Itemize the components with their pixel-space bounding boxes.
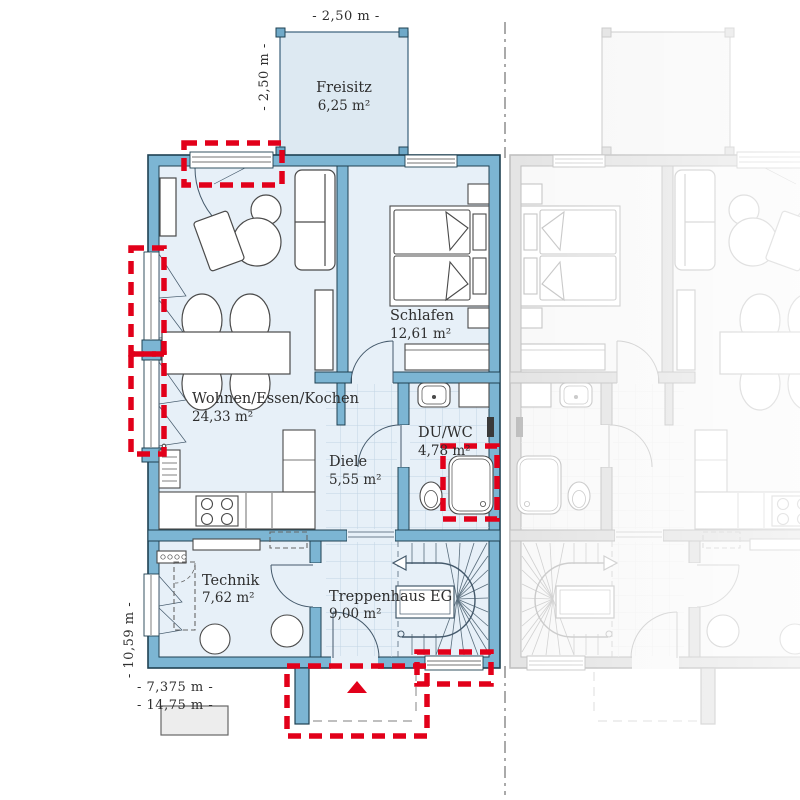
room-label-diele: Diele	[329, 454, 367, 470]
room-area-wohnen: 24,33 m²	[192, 409, 253, 425]
dim-house-depth: - 10,59 m -	[122, 602, 137, 678]
room-label-schlafen: Schlafen	[390, 308, 454, 324]
room-label-wohnen: Wohnen/Essen/Kochen	[192, 391, 359, 407]
floor-plan-svg: Freisitz 6,25 m² Schlafen 12,61 m² Wohne…	[0, 0, 800, 800]
floor-plan-page: Freisitz 6,25 m² Schlafen 12,61 m² Wohne…	[0, 0, 800, 800]
dim-terrace-width: - 2,50 m -	[312, 9, 379, 24]
room-label-freisitz: Freisitz	[316, 80, 372, 96]
room-area-schlafen: 12,61 m²	[390, 326, 451, 342]
room-label-treppenhaus: Treppenhaus EG	[329, 589, 452, 605]
dim-terrace-depth: - 2,50 m -	[257, 43, 272, 110]
dim-total-width: - 14,75 m -	[137, 698, 213, 713]
room-area-duwc: 4,78 m²	[418, 443, 471, 459]
neighbor-fade	[515, 0, 800, 800]
room-area-treppenhaus: 9,00 m²	[329, 606, 382, 622]
main-unit	[142, 28, 500, 724]
entrance-marker-icon	[347, 681, 367, 693]
dim-unit-width: - 7,375 m -	[137, 680, 213, 695]
room-label-technik: Technik	[202, 573, 260, 589]
room-area-technik: 7,62 m²	[202, 590, 255, 606]
room-area-diele: 5,55 m²	[329, 472, 382, 488]
room-area-freisitz: 6,25 m²	[318, 98, 371, 114]
room-label-duwc: DU/WC	[418, 425, 473, 441]
